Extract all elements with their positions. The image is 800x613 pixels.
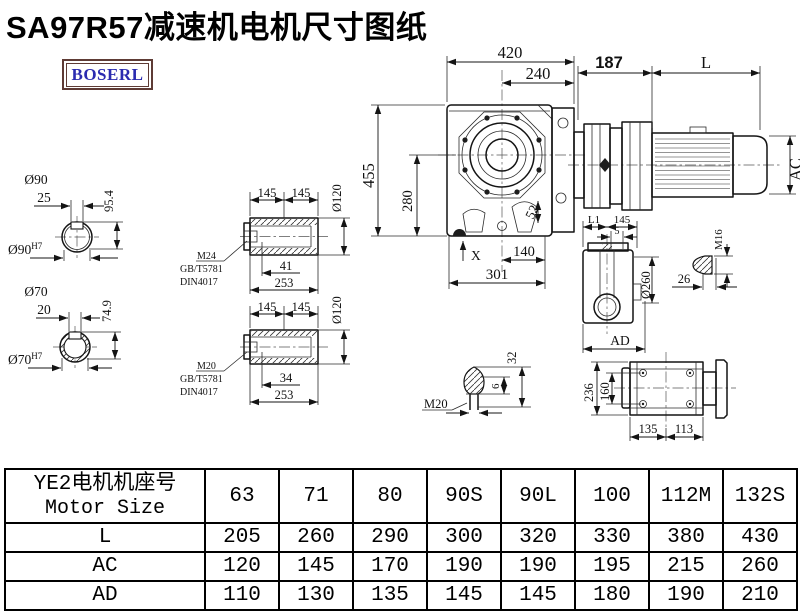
dim-side-5: 5 (615, 226, 620, 237)
table-cell: 210 (723, 581, 797, 610)
dim-side-AD: AD (610, 333, 630, 348)
col-header-100: 100 (575, 469, 649, 523)
table-row-L: L 205 260 290 300 320 330 380 430 (5, 523, 797, 552)
table-cell: 190 (649, 581, 723, 610)
dim-plug-32: 32 (505, 352, 519, 365)
dim-motor-AC: AC (786, 158, 800, 181)
gearbox-top-view: 236 160 135 113 (582, 352, 736, 441)
dim-main-half-width: 240 (526, 64, 551, 83)
hollow-shaft-m20: 145 145 Ø120 M20 GB/T5781 DIN4017 34 253 (180, 296, 350, 405)
table-cell: 145 (279, 552, 353, 581)
dim-shaft1-dia: Ø90 (24, 172, 47, 187)
col-header-132S: 132S (723, 469, 797, 523)
table-row-AD: AD 110 130 135 145 145 180 190 210 (5, 581, 797, 610)
table-cell: 120 (205, 552, 279, 581)
hollow-shaft-m24: 145 145 Ø120 M24 GB/T5781 DIN4017 41 253 (180, 184, 350, 294)
label-main-x: X (471, 248, 481, 263)
dim-shaft2-key-width: 20 (37, 302, 51, 317)
col-header-112M: 112M (649, 469, 723, 523)
dim-h2-dia: Ø120 (330, 296, 344, 324)
header-en: Motor Size (6, 497, 204, 520)
dim-top-113: 113 (675, 422, 693, 436)
row-label-AD: AD (5, 581, 205, 610)
header-cn: YE2电机机座号 (6, 472, 204, 497)
dim-h1-depth: 41 (280, 259, 293, 273)
table-cell: 145 (501, 581, 575, 610)
breather-plug-detail: M20 6 32 (422, 352, 531, 414)
table-cell: 110 (205, 581, 279, 610)
col-header-63: 63 (205, 469, 279, 523)
table-cell: 380 (649, 523, 723, 552)
row-label-L: L (5, 523, 205, 552)
dim-h1-145b: 145 (292, 186, 311, 200)
table-cell: 190 (427, 552, 501, 581)
motor-side-view: 187 L AC (568, 53, 800, 210)
col-header-90L: 90L (501, 469, 575, 523)
technical-drawing: Ø90 25 95.4 Ø90H7 Ø70 20 74.9 Ø70H7 (0, 0, 800, 460)
dim-h2-145a: 145 (258, 300, 277, 314)
dim-side-26: 26 (678, 272, 691, 286)
dim-h2-depth: 34 (280, 371, 293, 385)
dim-main-width: 420 (498, 43, 523, 62)
table-cell: 135 (353, 581, 427, 610)
dim-top-236: 236 (582, 383, 596, 402)
col-header-90S: 90S (427, 469, 501, 523)
dim-shaft2-key-height: 74.9 (100, 300, 114, 322)
table-cell: 180 (575, 581, 649, 610)
dim-main-height: 455 (359, 163, 378, 188)
dim-side-L1: L1 (588, 214, 600, 226)
dim-top-160: 160 (598, 382, 612, 401)
dim-h1-dia: Ø120 (330, 184, 344, 212)
dim-shaft1-key-height: 95.4 (102, 189, 116, 212)
col-header-80: 80 (353, 469, 427, 523)
dim-side-M16: M16 (713, 229, 725, 250)
table-header-motor-size: YE2电机机座号 Motor Size (5, 469, 205, 523)
col-header-71: 71 (279, 469, 353, 523)
shaft-section-90: Ø90 25 95.4 Ø90H7 (8, 172, 123, 261)
table-cell: 195 (575, 552, 649, 581)
label-h2-thread: M20 (197, 361, 216, 372)
table-cell: 300 (427, 523, 501, 552)
table-cell: 330 (575, 523, 649, 552)
table-header-row: YE2电机机座号 Motor Size 63 71 80 90S 90L 100… (5, 469, 797, 523)
dim-motor-187: 187 (595, 54, 623, 72)
table-cell: 130 (279, 581, 353, 610)
dim-h2-145b: 145 (292, 300, 311, 314)
dim-shaft1-bore: Ø90H7 (8, 241, 43, 257)
table-row-AC: AC 120 145 170 190 190 195 215 260 (5, 552, 797, 581)
dim-plug-6: 6 (490, 383, 502, 389)
dim-h2-length: 253 (275, 388, 294, 402)
dim-plug-M20: M20 (424, 397, 448, 411)
table-cell: 430 (723, 523, 797, 552)
dim-main-52: 52 (522, 203, 541, 222)
output-side-view: L1 145 5 Ø260 AD M16 26 (583, 214, 737, 353)
table-cell: 170 (353, 552, 427, 581)
dim-shaft2-dia: Ø70 (24, 284, 47, 299)
table-cell: 320 (501, 523, 575, 552)
table-cell: 205 (205, 523, 279, 552)
dim-main-301: 301 (486, 267, 509, 283)
table-cell: 260 (279, 523, 353, 552)
label-h1-thread: M24 (197, 251, 216, 262)
dim-motor-length-L: L (701, 53, 711, 72)
label-h1-std1: GB/T5781 (180, 264, 223, 275)
dim-shaft2-bore: Ø70H7 (8, 351, 43, 367)
shaft-section-70: Ø70 20 74.9 Ø70H7 (8, 284, 121, 371)
dim-shaft1-key-width: 25 (37, 190, 51, 205)
label-h1-std2: DIN4017 (180, 277, 218, 288)
dim-h1-145a: 145 (258, 186, 277, 200)
table-cell: 145 (427, 581, 501, 610)
table-cell: 190 (501, 552, 575, 581)
drawing-sheet: SA97R57减速机电机尺寸图纸 BOSERL Ø90 25 (0, 0, 800, 613)
label-h2-std2: DIN4017 (180, 387, 218, 398)
gearbox-front-view: 420 240 455 280 52 140 301 X (359, 43, 585, 289)
row-label-AC: AC (5, 552, 205, 581)
dim-h1-length: 253 (275, 276, 294, 290)
table-cell: 215 (649, 552, 723, 581)
dim-side-dia260: Ø260 (639, 271, 653, 299)
dim-main-center-height: 280 (400, 190, 416, 212)
motor-size-table: YE2电机机座号 Motor Size 63 71 80 90S 90L 100… (4, 468, 798, 611)
dim-main-140: 140 (513, 244, 535, 260)
table-cell: 290 (353, 523, 427, 552)
dim-top-135: 135 (639, 422, 658, 436)
dim-side-145: 145 (614, 214, 631, 226)
label-h2-std1: GB/T5781 (180, 374, 223, 385)
table-cell: 260 (723, 552, 797, 581)
